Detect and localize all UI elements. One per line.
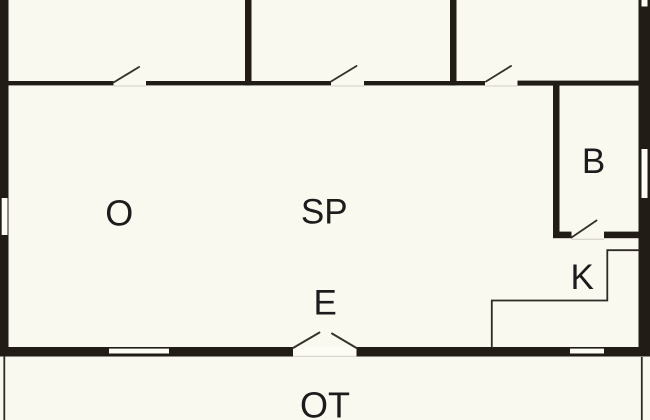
svg-text:SP: SP	[301, 193, 348, 232]
svg-text:K: K	[571, 258, 594, 297]
svg-text:O: O	[105, 192, 133, 233]
svg-text:E: E	[314, 284, 337, 323]
svg-text:OT: OT	[300, 385, 350, 420]
svg-text:B: B	[582, 142, 605, 181]
